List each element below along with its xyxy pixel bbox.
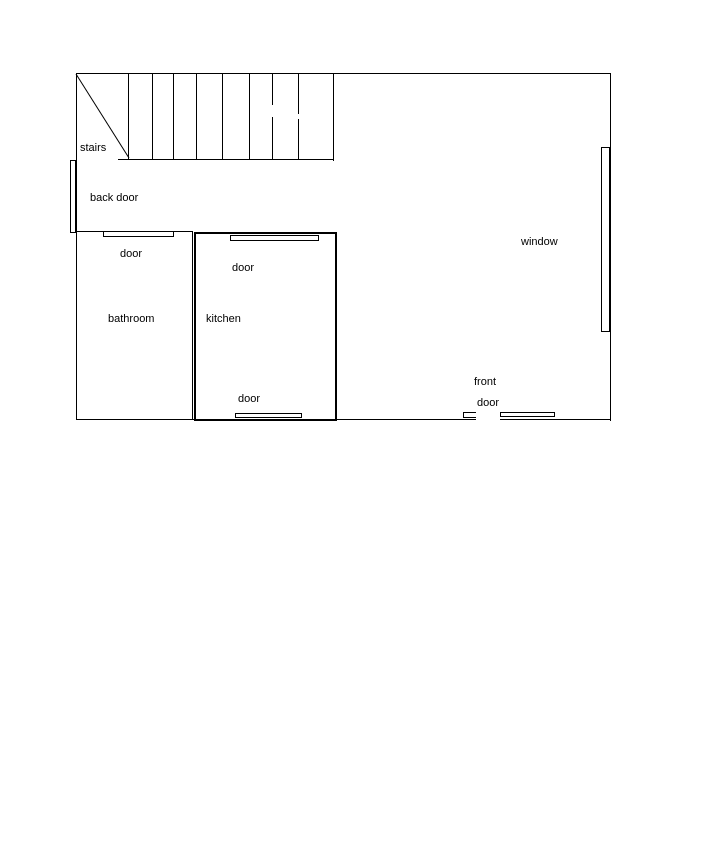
kitchen-top-door-symbol xyxy=(230,235,319,241)
stairs-diagonal-line xyxy=(0,0,721,861)
right-wall xyxy=(610,73,611,421)
label-window: window xyxy=(521,236,558,249)
bathroom-door-symbol xyxy=(103,231,174,237)
top-wall xyxy=(76,73,611,74)
window-symbol xyxy=(601,147,610,332)
front-door-leaf-symbol xyxy=(500,412,555,417)
stairs-right-wall xyxy=(333,73,334,161)
kitchen-left-wall xyxy=(194,232,196,421)
stair-tread-2 xyxy=(152,74,153,159)
label-bathroom-door: door xyxy=(120,248,142,261)
stair-tread-1 xyxy=(128,74,129,159)
stair-tread-8-lower xyxy=(298,119,299,159)
stair-tread-3 xyxy=(173,74,174,159)
label-kitchen-top-door: door xyxy=(232,262,254,275)
label-stairs: stairs xyxy=(80,142,106,155)
left-wall xyxy=(76,73,77,420)
stair-tread-5 xyxy=(222,74,223,159)
kitchen-bottom-door-symbol xyxy=(235,413,302,418)
label-bathroom: bathroom xyxy=(108,313,154,326)
back-door-symbol xyxy=(70,160,76,233)
label-kitchen: kitchen xyxy=(206,313,241,326)
kitchen-bottom-wall xyxy=(194,419,337,421)
label-front-door-word1: front xyxy=(474,376,496,389)
label-kitchen-bottom-door: door xyxy=(238,393,260,406)
bathroom-right-wall xyxy=(192,231,193,420)
stair-tread-4 xyxy=(196,74,197,159)
stair-tread-7-upper xyxy=(272,74,273,105)
front-door-jamb-symbol xyxy=(463,412,476,418)
floor-plan-canvas: stairs back door door bathroom door kitc… xyxy=(0,0,721,861)
label-back-door: back door xyxy=(90,192,138,205)
kitchen-right-wall xyxy=(335,232,337,421)
stairs-bottom-line xyxy=(118,159,334,160)
stair-tread-7-lower xyxy=(272,117,273,159)
stair-tread-8-upper xyxy=(298,74,299,114)
stair-tread-6 xyxy=(249,74,250,159)
kitchen-top-wall xyxy=(194,232,337,234)
label-front-door-word2: door xyxy=(477,397,499,410)
bottom-wall-right xyxy=(500,419,611,420)
